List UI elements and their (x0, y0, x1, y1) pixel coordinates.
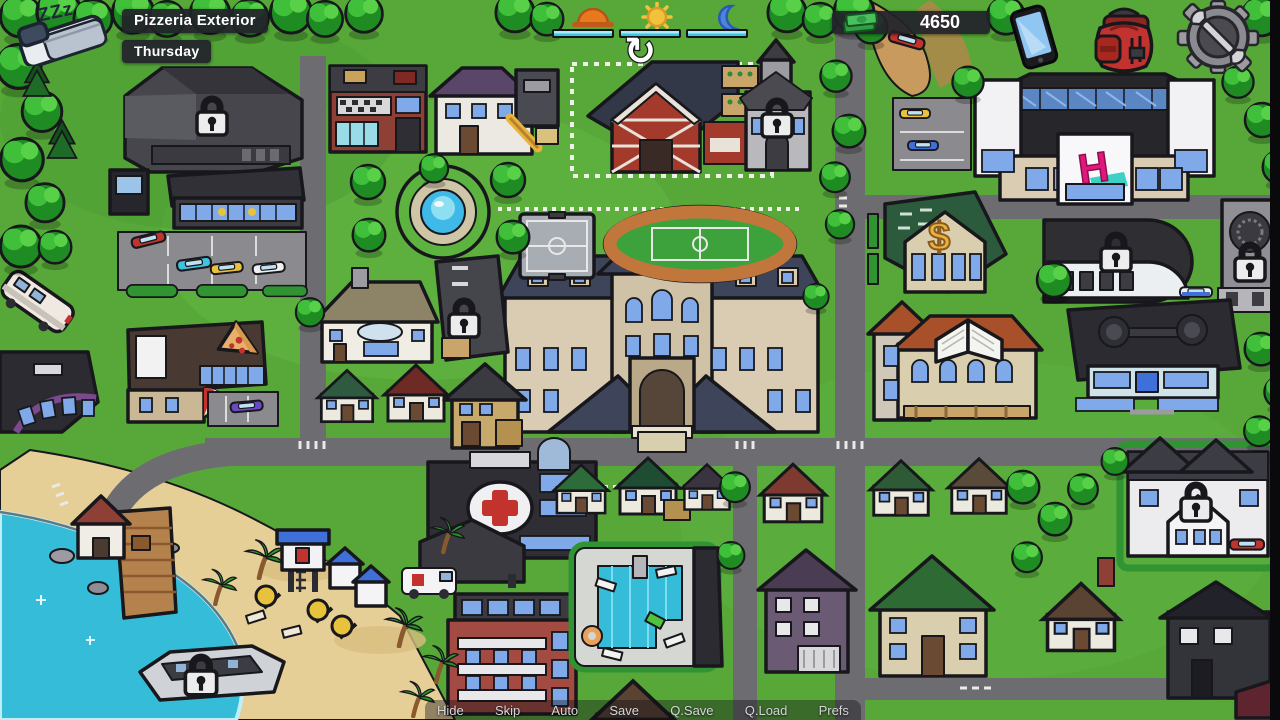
wait-refresh-button[interactable]: ↻ (616, 30, 664, 74)
phone-icon (1000, 4, 1068, 70)
bank-dollar-sign: $ (928, 215, 950, 259)
building-pizzeria[interactable] (128, 322, 278, 426)
car-red (1230, 539, 1264, 549)
day-label: Thursday (122, 40, 211, 63)
building-mall[interactable]: H (975, 74, 1214, 204)
moon-icon (719, 6, 736, 30)
map-canvas: H $ (0, 0, 1280, 720)
town-map-screen: H $ (0, 0, 1280, 720)
building-gym[interactable] (1068, 300, 1240, 412)
screen-edge (1270, 0, 1280, 720)
money-amount: 4650 (878, 11, 980, 34)
inventory-button[interactable] (1080, 0, 1168, 76)
quick-menu-prefs[interactable]: Prefs (819, 703, 849, 718)
settings-button[interactable] (1172, 0, 1264, 74)
sun-icon (643, 3, 671, 30)
building-locked-rowhouse[interactable] (436, 256, 508, 360)
car-blue (908, 141, 938, 150)
car-white (252, 262, 285, 275)
settings-gear-wrench-icon (1172, 0, 1264, 74)
quick-menu-skip[interactable]: Skip (495, 703, 520, 718)
quick-menu-hide[interactable]: Hide (437, 703, 464, 718)
sleep-button[interactable]: ZZz (12, 2, 122, 78)
svg-text:↻: ↻ (624, 30, 656, 73)
basketball-court[interactable] (520, 212, 594, 280)
building-library[interactable] (868, 302, 1042, 420)
cash-icon (842, 12, 878, 33)
building-locked-corner[interactable] (1218, 200, 1276, 312)
phone-button[interactable] (1000, 4, 1068, 70)
time-segment-3 (686, 29, 748, 38)
car-taxi (210, 262, 243, 275)
quick-menu: Hide Skip Auto Save Q.Save Q.Load Prefs (425, 700, 861, 720)
ambulance (402, 568, 456, 599)
circular-arrow-icon: ↻ (616, 30, 664, 74)
building-factory[interactable] (125, 68, 302, 172)
public-pool[interactable] (573, 546, 722, 668)
building-apartment-red[interactable] (448, 594, 576, 714)
sunrise-icon (572, 9, 614, 27)
car-yellow (900, 109, 930, 118)
quick-menu-qsave[interactable]: Q.Save (670, 703, 713, 718)
quick-menu-save[interactable]: Save (609, 703, 639, 718)
time-segment-1 (552, 29, 614, 38)
location-label: Pizzeria Exterior (122, 9, 268, 33)
sports-field[interactable] (604, 206, 796, 282)
building-mansion[interactable] (1120, 438, 1276, 568)
building-daycare[interactable] (430, 68, 558, 154)
backpack-icon (1080, 0, 1168, 76)
car-purple (230, 400, 263, 412)
store-parking-lot (118, 231, 307, 298)
building-apartment-brick[interactable] (330, 66, 426, 152)
quick-menu-qload[interactable]: Q.Load (745, 703, 788, 718)
quick-menu-auto[interactable]: Auto (551, 703, 578, 718)
money-display: 4650 (832, 11, 990, 34)
